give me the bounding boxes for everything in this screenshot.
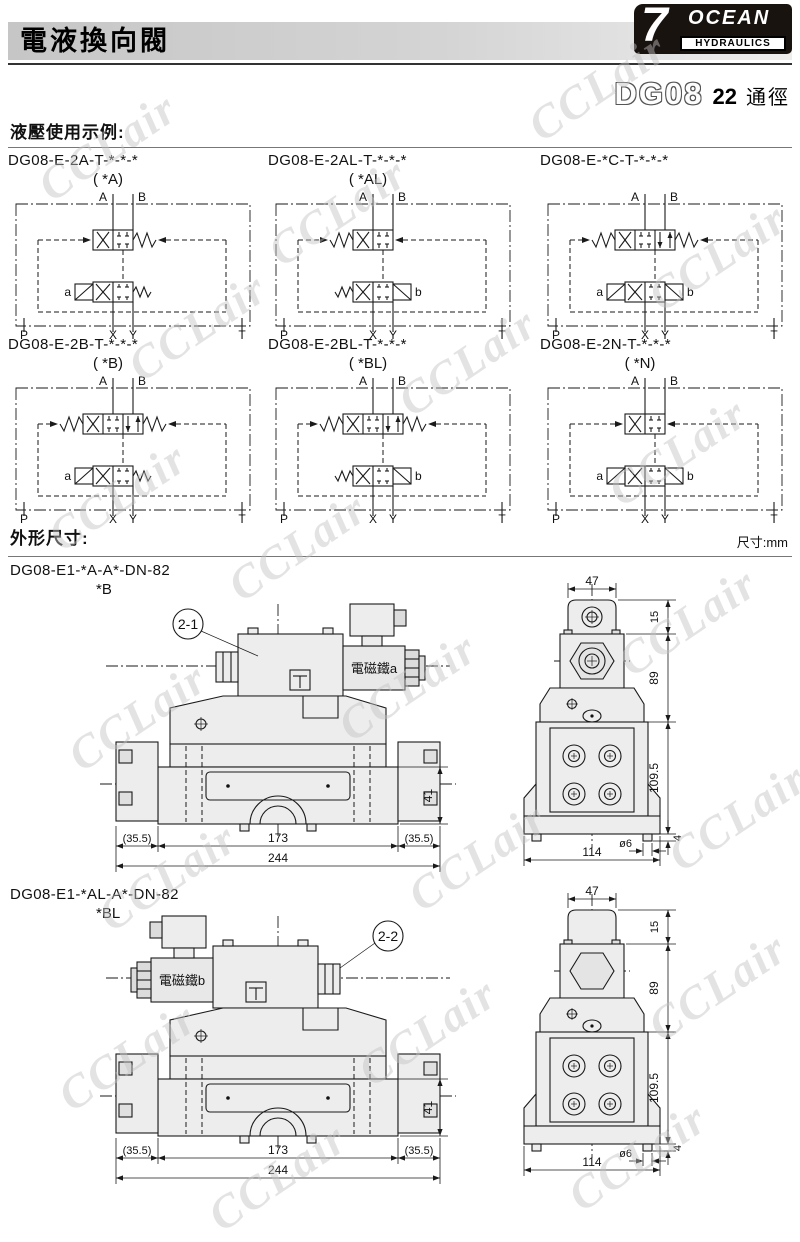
unit-note: 尺寸:mm xyxy=(737,532,788,551)
svg-text:P: P xyxy=(280,512,288,524)
svg-text:a: a xyxy=(596,285,603,299)
svg-text:A: A xyxy=(359,374,367,388)
svg-text:A: A xyxy=(631,374,639,388)
schematic-tile-N: DG08-E-2N-T-*-*-* ( *N) ABabPXYT xyxy=(540,336,792,524)
svg-text:ø6: ø6 xyxy=(619,838,632,850)
svg-text:Y: Y xyxy=(661,512,669,524)
schematic-tile-BL: DG08-E-2BL-T-*-*-* ( *BL) ABbPXYT xyxy=(268,336,520,524)
svg-text:B: B xyxy=(138,374,146,388)
svg-text:b: b xyxy=(415,469,422,483)
svg-text:B: B xyxy=(398,374,406,388)
schematic-title: DG08-E-2AL-T-*-*-* xyxy=(268,152,520,171)
svg-text:89: 89 xyxy=(647,981,661,995)
svg-text:114: 114 xyxy=(582,845,601,859)
svg-text:15: 15 xyxy=(649,611,661,623)
svg-text:b: b xyxy=(687,285,694,299)
schematic-tile-B: DG08-E-2B-T-*-*-* ( *B) ABaPXYT xyxy=(8,336,260,524)
svg-text:Y: Y xyxy=(129,512,137,524)
svg-text:2-1: 2-1 xyxy=(178,616,198,632)
svg-text:173: 173 xyxy=(268,1143,288,1157)
schematic-tile-AL: DG08-E-2AL-T-*-*-* ( *AL) ABbPXYT xyxy=(268,152,520,340)
svg-text:114: 114 xyxy=(582,1155,601,1169)
hydraulic-circuit-svg: ABabPXYT xyxy=(540,374,790,524)
outline-side-view-svg: 471589109.54114ø6 xyxy=(492,570,697,875)
svg-text:A: A xyxy=(99,190,107,204)
svg-text:244: 244 xyxy=(268,1163,288,1177)
logo-seven-glyph: 7 xyxy=(641,0,668,53)
svg-text:47: 47 xyxy=(585,884,599,898)
section-title-usage: 液壓使用示例: xyxy=(10,118,125,143)
svg-text:89: 89 xyxy=(647,671,661,685)
svg-text:(35.5): (35.5) xyxy=(405,1145,434,1157)
svg-text:P: P xyxy=(552,512,560,524)
schematic-tile-C: DG08-E-*C-T-*-*-* ABabPXYT xyxy=(540,152,792,340)
outline-side-view-svg: 471589109.54114ø6 xyxy=(492,880,697,1185)
schematic-subtitle: ( *N) xyxy=(592,355,688,373)
svg-text:B: B xyxy=(398,190,406,204)
model-code-line: DG08 22 通徑 xyxy=(615,76,790,112)
model-size: 22 xyxy=(713,84,737,110)
svg-text:電磁鐵b: 電磁鐵b xyxy=(159,973,205,988)
svg-text:47: 47 xyxy=(585,574,599,588)
svg-text:(35.5): (35.5) xyxy=(123,833,152,845)
svg-text:a: a xyxy=(596,469,603,483)
schematic-title: DG08-E-2A-T-*-*-* xyxy=(8,152,260,171)
schematic-title: DG08-E-2BL-T-*-*-* xyxy=(268,336,520,355)
svg-text:15: 15 xyxy=(649,921,661,933)
svg-text:173: 173 xyxy=(268,831,288,845)
brand-logo: 7 OCEAN HYDRAULICS xyxy=(634,4,792,54)
hydraulic-circuit-svg: ABabPXYT xyxy=(540,190,790,340)
svg-text:2-2: 2-2 xyxy=(378,928,398,944)
hydraulic-circuit-svg: ABbPXYT xyxy=(268,190,518,340)
svg-text:B: B xyxy=(670,374,678,388)
outline-front-view-svg: 電磁鐵b2-2(35.5)173(35.5)24441 xyxy=(88,906,468,1186)
schematic-title: DG08-E-*C-T-*-*-* xyxy=(540,152,792,171)
schematic-subtitle: ( *A) xyxy=(60,171,156,189)
schematic-title: DG08-E-2N-T-*-*-* xyxy=(540,336,792,355)
svg-text:b: b xyxy=(415,285,422,299)
svg-text:a: a xyxy=(64,469,71,483)
svg-text:A: A xyxy=(99,374,107,388)
logo-ocean-text: OCEAN xyxy=(688,7,770,30)
svg-text:4: 4 xyxy=(672,835,684,841)
svg-text:b: b xyxy=(687,469,694,483)
logo-hydraulics-text: HYDRAULICS xyxy=(680,36,786,51)
svg-text:A: A xyxy=(631,190,639,204)
svg-text:ø6: ø6 xyxy=(619,1148,632,1160)
svg-text:B: B xyxy=(670,190,678,204)
svg-text:(35.5): (35.5) xyxy=(405,833,434,845)
section-rule-outline xyxy=(8,556,792,557)
outline-front-view-svg: 電磁鐵a2-1(35.5)173(35.5)24441 xyxy=(88,594,468,874)
schematic-subtitle xyxy=(592,171,688,189)
model-size-unit: 通徑 xyxy=(746,81,790,110)
svg-text:P: P xyxy=(20,512,28,524)
svg-text:B: B xyxy=(138,190,146,204)
svg-text:41: 41 xyxy=(421,789,435,803)
section-title-outline: 外形尺寸: xyxy=(10,524,89,549)
svg-text:X: X xyxy=(641,512,649,524)
section-rule-usage xyxy=(8,147,792,148)
svg-text:a: a xyxy=(64,285,71,299)
model-series: DG08 xyxy=(615,76,704,112)
svg-text:電磁鐵a: 電磁鐵a xyxy=(351,661,398,676)
svg-text:Y: Y xyxy=(389,512,397,524)
svg-text:A: A xyxy=(359,190,367,204)
svg-text:41: 41 xyxy=(421,1101,435,1115)
svg-text:X: X xyxy=(369,512,377,524)
schematic-subtitle: ( *BL) xyxy=(320,355,416,373)
hydraulic-circuit-svg: ABaPXYT xyxy=(8,190,258,340)
svg-text:4: 4 xyxy=(672,1145,684,1151)
schematic-title: DG08-E-2B-T-*-*-* xyxy=(8,336,260,355)
svg-text:T: T xyxy=(770,512,778,524)
header-rule xyxy=(8,63,792,65)
svg-text:X: X xyxy=(109,512,117,524)
svg-text:109.5: 109.5 xyxy=(647,763,661,793)
outline-drawing-title: DG08-E1-*A-A*-DN-82 xyxy=(10,562,170,579)
schematic-subtitle: ( *AL) xyxy=(320,171,416,189)
svg-text:(35.5): (35.5) xyxy=(123,1145,152,1157)
hydraulic-circuit-svg: ABaPXYT xyxy=(8,374,258,524)
svg-text:T: T xyxy=(498,512,506,524)
schematic-tile-A: DG08-E-2A-T-*-*-* ( *A) ABaPXYT xyxy=(8,152,260,340)
outline-drawing-title: DG08-E1-*AL-A*-DN-82 xyxy=(10,886,179,903)
svg-text:244: 244 xyxy=(268,851,288,865)
svg-text:109.5: 109.5 xyxy=(647,1073,661,1103)
svg-text:T: T xyxy=(238,512,246,524)
hydraulic-circuit-svg: ABbPXYT xyxy=(268,374,518,524)
schematic-subtitle: ( *B) xyxy=(60,355,156,373)
